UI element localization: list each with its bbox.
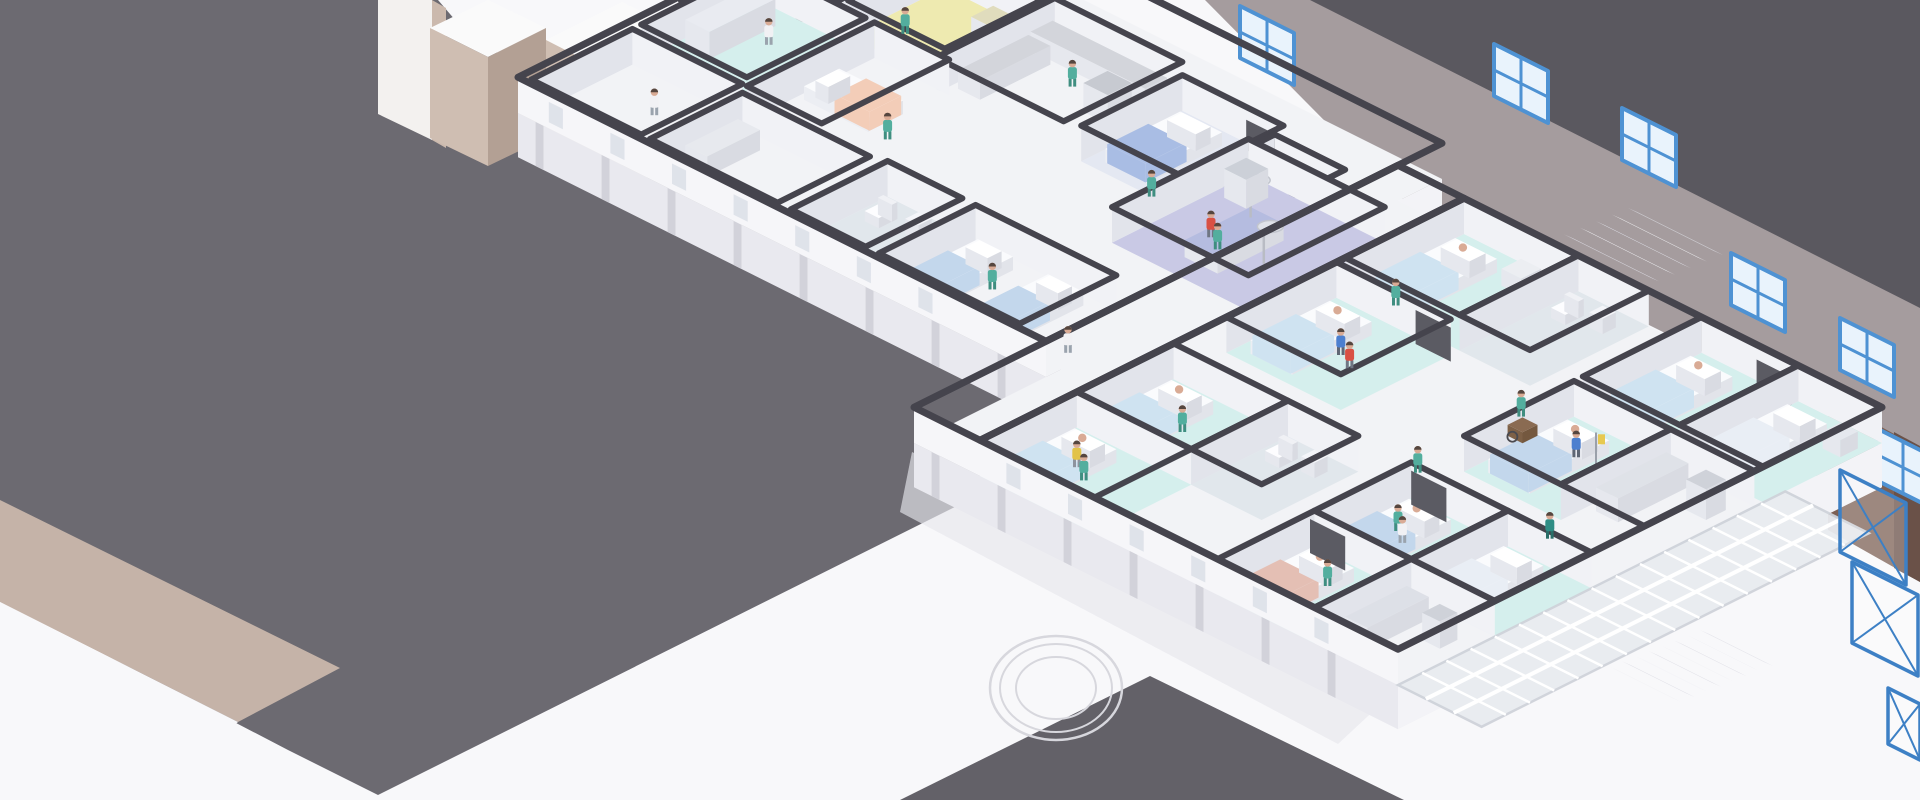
hospital-cutaway-rendering — [0, 0, 1920, 800]
isometric-hospital-scene — [0, 0, 1920, 800]
